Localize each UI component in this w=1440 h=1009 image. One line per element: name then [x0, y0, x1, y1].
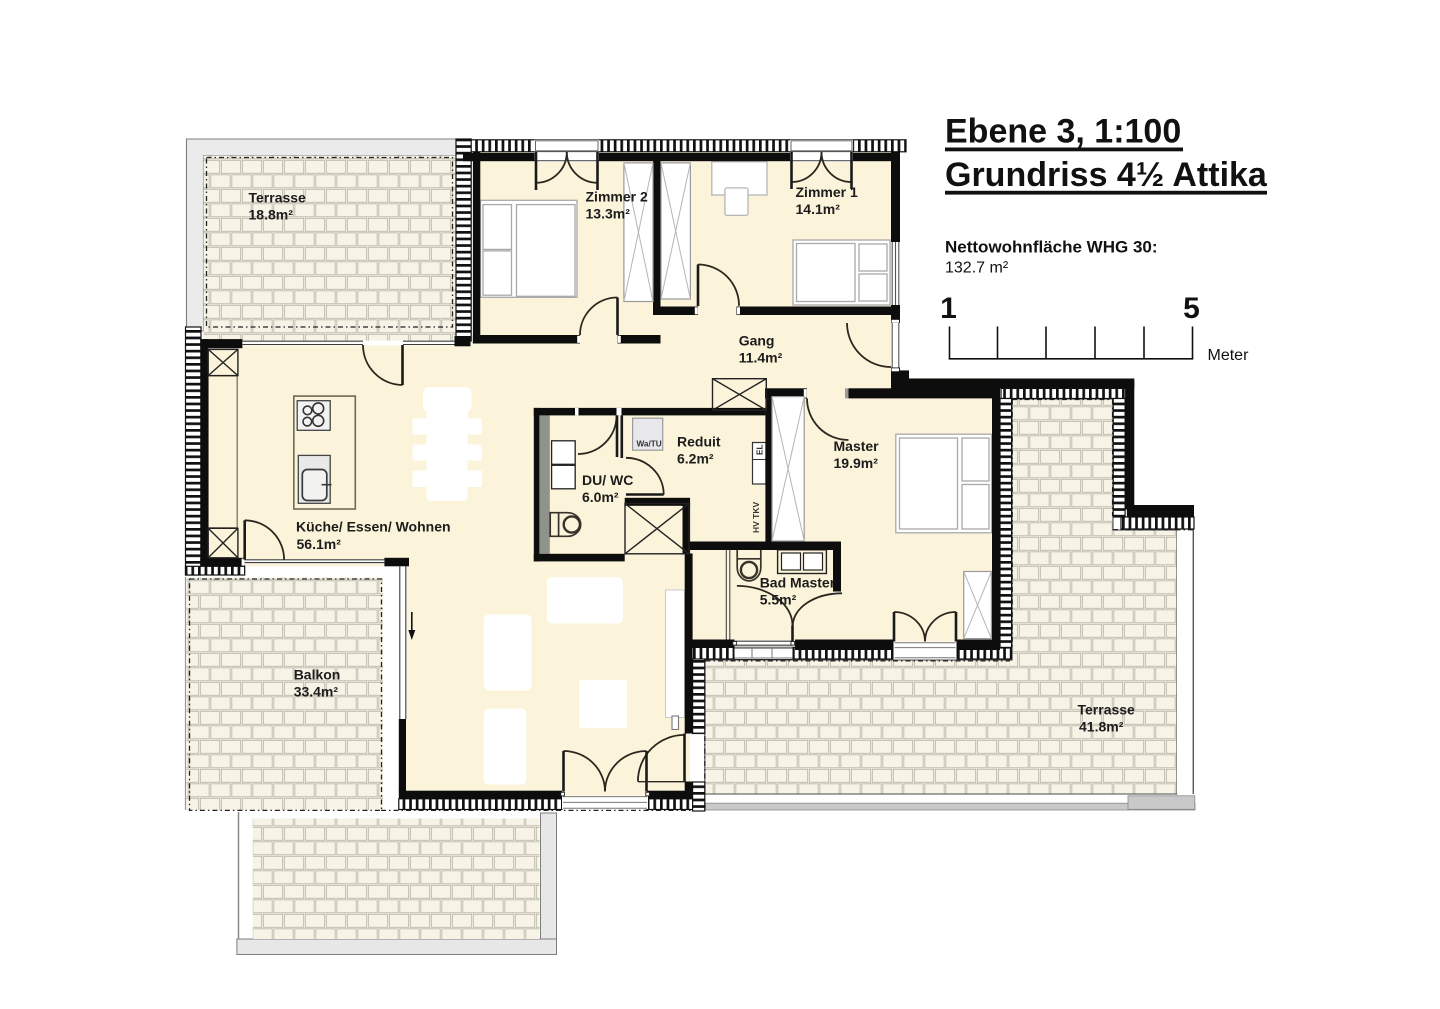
svg-text:Grundriss 4½ Attika: Grundriss 4½ Attika	[945, 156, 1268, 194]
svg-text:Zimmer 1: Zimmer 1	[796, 184, 858, 200]
svg-text:Zimmer 2: Zimmer 2	[586, 189, 648, 205]
svg-text:6.2m²: 6.2m²	[677, 451, 714, 467]
svg-text:Nettowohnfläche WHG 30:: Nettowohnfläche WHG 30:	[945, 238, 1158, 257]
svg-text:Küche/ Essen/ Wohnen: Küche/ Essen/ Wohnen	[296, 519, 451, 535]
svg-text:132.7 m²: 132.7 m²	[945, 260, 1009, 277]
svg-text:Bad Master: Bad Master	[760, 575, 836, 591]
svg-text:Meter: Meter	[1208, 347, 1250, 364]
svg-text:Master: Master	[834, 438, 880, 454]
svg-text:18.8m²: 18.8m²	[249, 207, 294, 223]
svg-text:5: 5	[1183, 292, 1200, 325]
svg-text:HV TKV: HV TKV	[751, 502, 761, 534]
svg-text:Balkon: Balkon	[294, 667, 341, 683]
svg-text:13.3m²: 13.3m²	[586, 206, 631, 222]
svg-text:Wa/TU: Wa/TU	[637, 440, 662, 449]
svg-text:Reduit: Reduit	[677, 434, 721, 450]
svg-text:14.1m²: 14.1m²	[796, 201, 841, 217]
svg-text:56.1m²: 56.1m²	[297, 536, 342, 552]
svg-text:6.0m²: 6.0m²	[582, 489, 619, 505]
svg-text:EL: EL	[756, 445, 765, 455]
svg-text:11.4m²: 11.4m²	[739, 350, 783, 366]
svg-text:Terrasse: Terrasse	[1078, 702, 1136, 718]
svg-text:41.8m²: 41.8m²	[1079, 719, 1124, 735]
svg-text:DU/ WC: DU/ WC	[582, 472, 633, 488]
svg-text:Ebene 3, 1:100: Ebene 3, 1:100	[945, 113, 1181, 151]
svg-text:1: 1	[940, 292, 957, 325]
svg-text:19.9m²: 19.9m²	[834, 455, 879, 471]
svg-text:33.4m²: 33.4m²	[294, 684, 339, 700]
svg-text:Gang: Gang	[739, 333, 775, 349]
svg-text:5.5m²: 5.5m²	[760, 592, 797, 608]
svg-text:Terrasse: Terrasse	[249, 190, 307, 206]
